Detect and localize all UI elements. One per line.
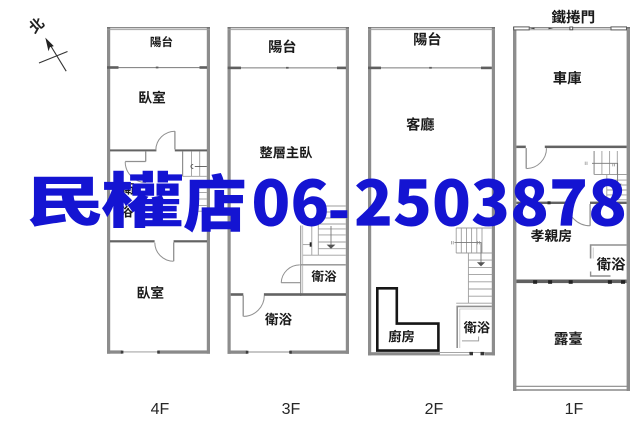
svg-text:3F: 3F [282, 401, 301, 418]
svg-text:4F: 4F [151, 401, 170, 418]
svg-text:2F: 2F [425, 401, 444, 418]
svg-text:1F: 1F [565, 401, 584, 418]
